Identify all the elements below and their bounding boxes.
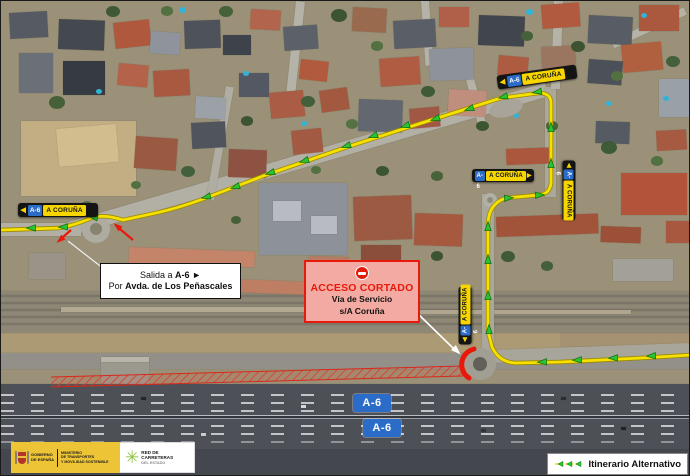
highway-median <box>1 415 690 419</box>
a6-shield: A-6 <box>506 74 522 87</box>
gobierno-text: GOBIERNO DE ESPAÑA <box>31 453 54 462</box>
direction-label-center: A-6 A CORUÑA ▶ <box>472 169 534 182</box>
map-canvas: ◀ A-6 A CORUÑA ◀ A-6 A CORUÑA A-6 A CORU… <box>0 0 690 476</box>
no-entry-icon <box>355 266 369 280</box>
red-carreteras-logo: ✳ <box>125 449 139 466</box>
down-arrow-icon: ◀ <box>460 336 470 343</box>
spain-coat-of-arms <box>14 448 29 468</box>
left-arrow-icon: ◀ <box>498 76 507 88</box>
salida-callout: Salida a A-6 ► Por Avda. de Los Peñascal… <box>100 263 241 299</box>
ministerio-text: MINISTERIO DE TRANSPORTES Y MOVILIDAD SO… <box>61 451 108 464</box>
left-arrow-icon: ◀ <box>20 205 27 216</box>
a6-shield: A-6 <box>460 325 470 335</box>
motorway-shield-a6: A-6 <box>363 419 401 437</box>
divider <box>57 449 58 467</box>
right-arrow-icon: ► <box>192 270 201 280</box>
salida-line1: Salida a A-6 ► <box>101 270 240 281</box>
highway-lane-marking <box>1 433 690 435</box>
acceso-line1: Vía de Servicio <box>332 294 392 305</box>
destination-label: A CORUÑA <box>486 171 526 181</box>
highway-lane-marking <box>1 394 690 396</box>
direction-label-west: ◀ A-6 A CORUÑA <box>18 203 98 217</box>
red-carreteras-block: ✳ RED DE CARRETERAS DEL ESTADO <box>120 442 195 473</box>
salida-leader-line <box>68 241 104 269</box>
gobierno-espana-block: GOBIERNO DE ESPAÑA MINISTERIO DE TRANSPO… <box>11 442 120 473</box>
red-carreteras-text: RED DE CARRETERAS DEL ESTADO <box>141 450 173 465</box>
acceso-title: ACCESO CORTADO <box>311 282 414 294</box>
a6-shield: A-6 <box>475 171 486 181</box>
motorway-shield-a6: A-6 <box>353 394 391 412</box>
right-arrow-icon: ▶ <box>526 171 533 181</box>
direction-label-east-vertical: ◀ A-6 A CORUÑA <box>563 161 576 221</box>
legend-label: Itinerario Alternativo <box>588 459 681 470</box>
up-arrow-icon: ◀ <box>564 162 574 169</box>
destination-label: A CORUÑA <box>43 205 85 216</box>
legend: Itinerario Alternativo <box>547 453 688 475</box>
highway-lane-marking <box>1 410 690 412</box>
government-logo-bar: GOBIERNO DE ESPAÑA MINISTERIO DE TRANSPO… <box>11 442 195 473</box>
acceso-line2: s/A Coruña <box>339 306 384 317</box>
acceso-cortado-callout: ACCESO CORTADO Vía de Servicio s/A Coruñ… <box>304 260 420 323</box>
direction-label-south-vertical: ◀ A-6 A CORUÑA <box>459 287 472 345</box>
highway-lane-marking <box>1 425 690 427</box>
salida-line2: Por Avda. de Los Peñascales <box>101 281 240 292</box>
a6-shield: A-6 <box>28 205 42 216</box>
destination-label: A CORUÑA <box>460 284 470 324</box>
a6-shield: A-6 <box>564 170 574 180</box>
highway-lane-marking <box>1 402 690 404</box>
destination-label: A CORUÑA <box>564 181 574 221</box>
legend-route-sample <box>554 459 582 469</box>
